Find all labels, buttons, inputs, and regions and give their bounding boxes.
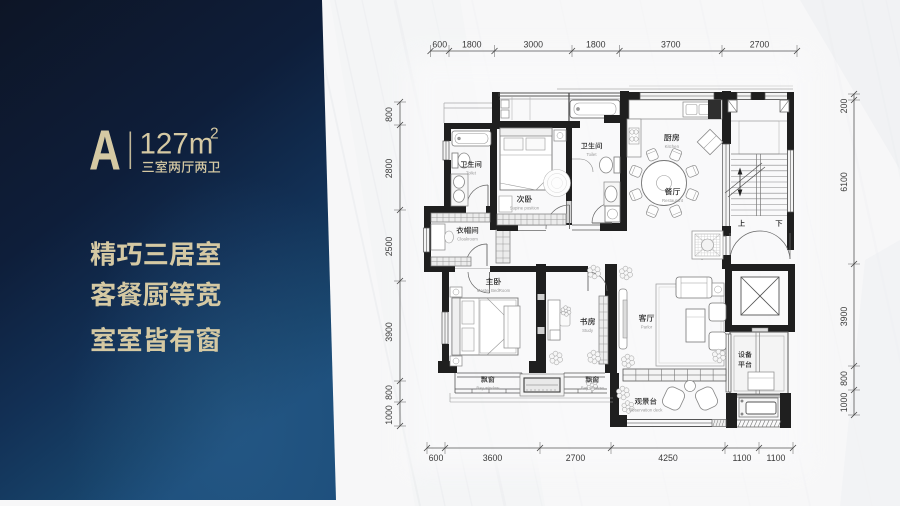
svg-text:2: 2 [210, 126, 219, 143]
svg-text:Toilet: Toilet [466, 171, 477, 176]
svg-text:127m: 127m [140, 128, 214, 161]
svg-text:800: 800 [384, 107, 394, 122]
svg-text:800: 800 [384, 385, 394, 400]
svg-text:2700: 2700 [750, 40, 770, 50]
svg-text:1800: 1800 [462, 40, 482, 50]
svg-text:3900: 3900 [384, 322, 394, 342]
svg-text:Parlor: Parlor [641, 325, 653, 330]
svg-text:Observation deck: Observation deck [629, 408, 663, 413]
svg-text:6100: 6100 [839, 172, 849, 192]
svg-text:A: A [89, 118, 121, 182]
svg-text:Master BedRoom: Master BedRoom [477, 288, 511, 293]
svg-text:800: 800 [839, 371, 849, 386]
svg-text:Kitchen: Kitchen [665, 144, 680, 149]
svg-text:1100: 1100 [733, 453, 752, 463]
svg-text:Supine position: Supine position [510, 206, 540, 211]
svg-text:Restaurant: Restaurant [662, 198, 684, 203]
svg-text:Toilet: Toilet [586, 152, 597, 157]
svg-text:Study: Study [582, 328, 594, 333]
svg-text:4250: 4250 [658, 453, 678, 463]
svg-text:1800: 1800 [586, 40, 606, 50]
svg-text:3600: 3600 [483, 453, 503, 463]
svg-text:200: 200 [839, 99, 849, 114]
svg-text:3000: 3000 [523, 40, 543, 50]
svg-text:2500: 2500 [384, 237, 394, 257]
svg-text:3700: 3700 [661, 40, 681, 50]
svg-text:1000: 1000 [384, 405, 394, 425]
svg-text:2700: 2700 [566, 453, 586, 463]
svg-text:600: 600 [432, 40, 447, 50]
svg-text:1000: 1000 [839, 393, 849, 413]
svg-text:2800: 2800 [384, 159, 394, 179]
svg-text:Bay window: Bay window [476, 386, 500, 391]
svg-text:1100: 1100 [767, 453, 786, 463]
svg-text:3900: 3900 [839, 307, 849, 327]
svg-text:Bay window: Bay window [581, 386, 605, 391]
svg-text:Cloakroom: Cloakroom [457, 237, 478, 242]
svg-text:600: 600 [429, 453, 444, 463]
